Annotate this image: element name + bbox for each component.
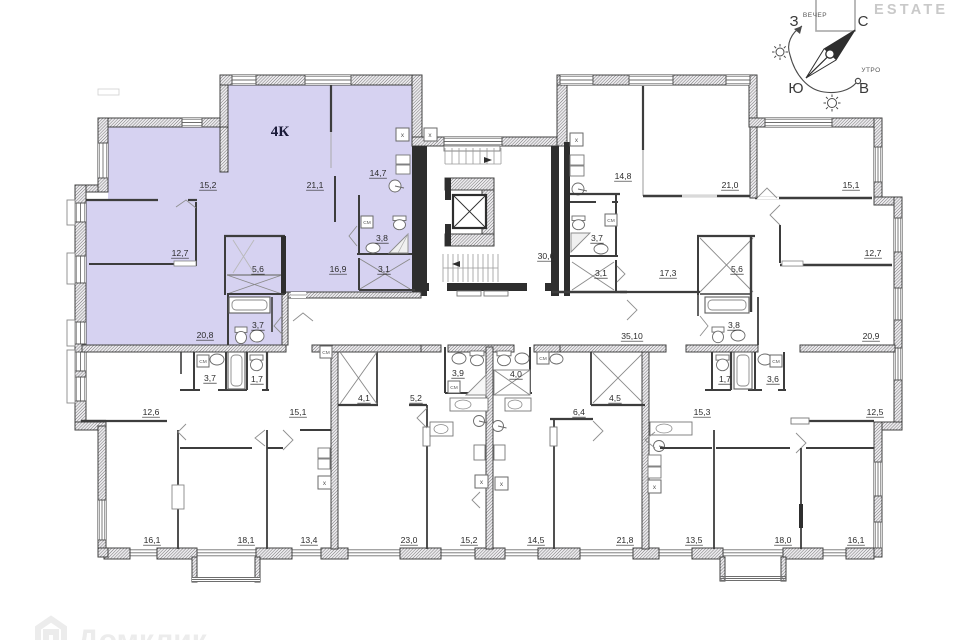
svg-text:СМ: СМ — [607, 218, 614, 224]
svg-text:4К: 4К — [271, 124, 290, 140]
svg-text:18,0: 18,0 — [775, 535, 792, 545]
svg-text:12,6: 12,6 — [143, 407, 160, 417]
svg-text:23,0: 23,0 — [401, 535, 418, 545]
svg-text:3,7: 3,7 — [204, 373, 216, 383]
svg-text:21,0: 21,0 — [722, 180, 739, 190]
svg-text:5,2: 5,2 — [410, 393, 422, 403]
svg-text:4,5: 4,5 — [609, 393, 621, 403]
svg-text:3,1: 3,1 — [595, 268, 607, 278]
svg-text:12,7: 12,7 — [865, 248, 882, 258]
svg-text:3,8: 3,8 — [728, 320, 740, 330]
svg-text:21,1: 21,1 — [307, 180, 324, 190]
svg-text:13,5: 13,5 — [686, 535, 703, 545]
svg-text:15,1: 15,1 — [290, 407, 307, 417]
svg-text:14,5: 14,5 — [528, 535, 545, 545]
svg-text:Ю: Ю — [788, 80, 803, 97]
svg-text:16,1: 16,1 — [848, 535, 865, 545]
svg-text:18,1: 18,1 — [238, 535, 255, 545]
svg-text:1,7: 1,7 — [251, 374, 263, 384]
svg-text:20,8: 20,8 — [197, 330, 214, 340]
svg-text:С: С — [858, 13, 869, 30]
svg-text:12,7: 12,7 — [172, 248, 189, 258]
svg-text:СМ: СМ — [199, 359, 206, 365]
svg-text:14,7: 14,7 — [370, 168, 387, 178]
svg-text:З: З — [789, 13, 798, 30]
svg-text:35,10: 35,10 — [621, 331, 643, 341]
svg-text:3,9: 3,9 — [452, 368, 464, 378]
svg-text:21,8: 21,8 — [617, 535, 634, 545]
svg-text:5,6: 5,6 — [731, 264, 743, 274]
svg-text:12,5: 12,5 — [867, 407, 884, 417]
svg-text:6,4: 6,4 — [573, 407, 585, 417]
svg-text:СМ: СМ — [539, 356, 546, 362]
svg-text:3,7: 3,7 — [591, 233, 603, 243]
svg-text:СМ: СМ — [322, 350, 329, 356]
svg-text:16,9: 16,9 — [330, 264, 347, 274]
svg-text:4,0: 4,0 — [510, 369, 522, 379]
svg-text:СМ: СМ — [450, 385, 457, 391]
svg-text:СМ: СМ — [363, 220, 370, 226]
svg-text:15,2: 15,2 — [461, 535, 478, 545]
svg-text:15,2: 15,2 — [200, 180, 217, 190]
svg-text:16,1: 16,1 — [144, 535, 161, 545]
svg-text:ESTATE: ESTATE — [874, 2, 948, 18]
svg-text:ВЕЧЕР: ВЕЧЕР — [803, 12, 827, 19]
svg-text:30,6: 30,6 — [538, 251, 555, 261]
svg-text:15,1: 15,1 — [843, 180, 860, 190]
svg-text:3,1: 3,1 — [378, 264, 390, 274]
svg-text:4,1: 4,1 — [358, 393, 370, 403]
svg-text:СМ: СМ — [772, 359, 779, 365]
svg-text:3,8: 3,8 — [376, 233, 388, 243]
svg-text:17,3: 17,3 — [660, 268, 677, 278]
svg-text:20,9: 20,9 — [863, 331, 880, 341]
svg-text:3,6: 3,6 — [767, 374, 779, 384]
svg-text:УТРО: УТРО — [861, 67, 880, 74]
svg-text:3,7: 3,7 — [252, 320, 264, 330]
svg-text:5,6: 5,6 — [252, 264, 264, 274]
svg-text:13,4: 13,4 — [301, 535, 318, 545]
svg-text:15,3: 15,3 — [694, 407, 711, 417]
svg-text:В: В — [859, 80, 869, 97]
svg-text:1,7: 1,7 — [719, 374, 731, 384]
svg-text:Домклик: Домклик — [77, 624, 208, 640]
svg-text:14,8: 14,8 — [615, 171, 632, 181]
